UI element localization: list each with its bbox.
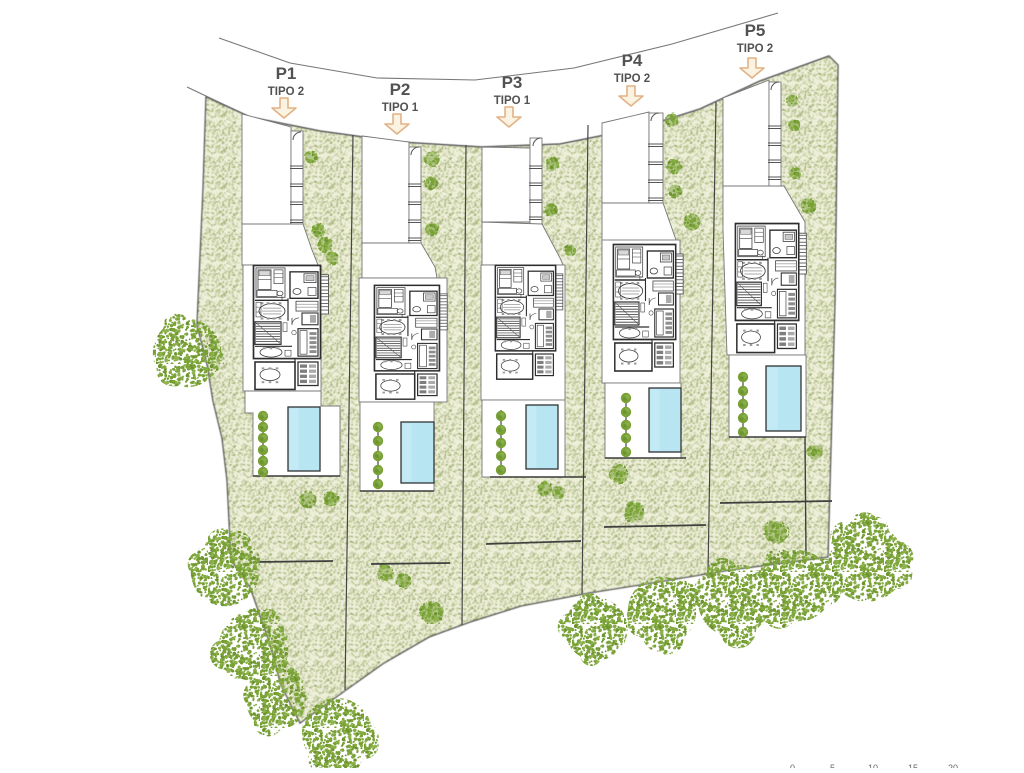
svg-text:P2: P2 [390, 80, 411, 99]
svg-text:TIPO 1: TIPO 1 [494, 95, 531, 107]
svg-text:0: 0 [790, 763, 795, 768]
svg-text:10: 10 [868, 763, 878, 768]
svg-text:TIPO 2: TIPO 2 [268, 86, 304, 98]
svg-text:P3: P3 [502, 73, 523, 92]
svg-text:P5: P5 [745, 21, 766, 40]
svg-text:TIPO 2: TIPO 2 [614, 73, 650, 85]
svg-text:TIPO 1: TIPO 1 [382, 102, 419, 114]
svg-text:20: 20 [948, 763, 958, 768]
svg-text:15: 15 [908, 763, 918, 768]
svg-text:5: 5 [830, 763, 835, 768]
svg-text:P1: P1 [276, 64, 297, 83]
svg-text:P4: P4 [622, 51, 643, 70]
svg-text:TIPO 2: TIPO 2 [737, 43, 773, 55]
